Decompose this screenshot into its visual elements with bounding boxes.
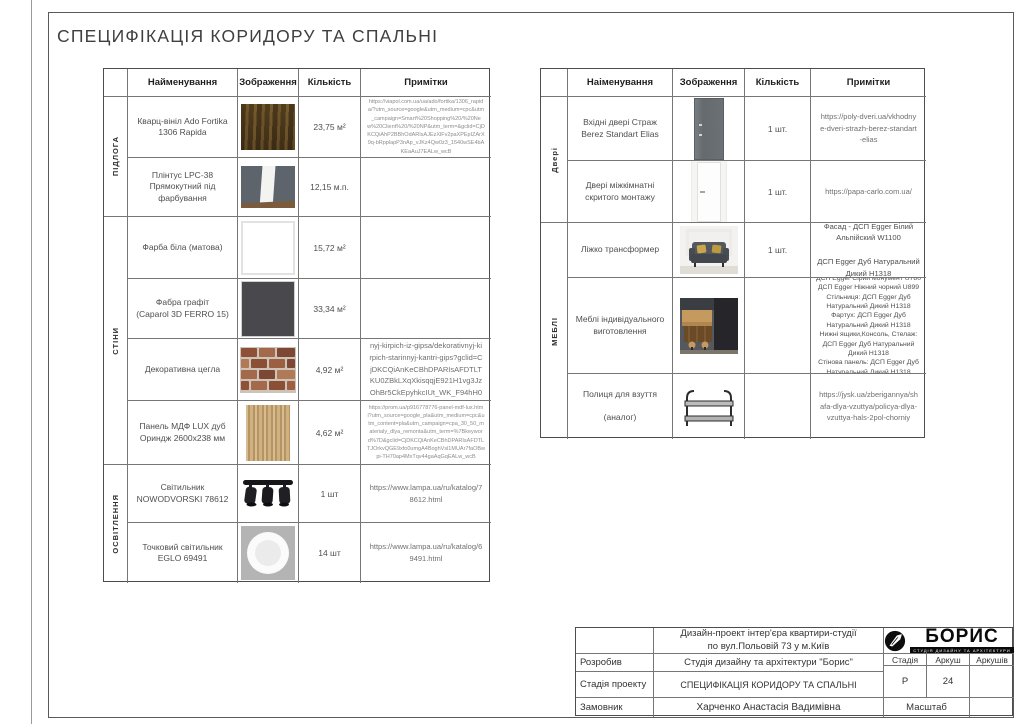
cell-qty — [745, 278, 811, 374]
cell-image — [238, 523, 299, 583]
custom-kitchen-image — [680, 298, 738, 354]
category-floor: ПІДЛОГА — [104, 97, 128, 217]
col-header-qty: Кількість — [745, 69, 811, 97]
cell-name: Меблі індивідуального виготовлення — [568, 278, 673, 374]
cell-image — [238, 158, 299, 217]
label-scale: Масштаб — [884, 698, 970, 717]
category-label: Двері — [550, 147, 559, 173]
interior-door-image — [691, 161, 727, 223]
cell-image — [673, 223, 745, 278]
cell-image — [238, 465, 299, 523]
cell-image — [238, 401, 299, 465]
col-header-category-blank — [104, 69, 128, 97]
cell-notes: ДСП Egger Сірий монумент U780 ДСП Egger … — [811, 278, 926, 374]
cell-name: Кварц-вініл Ado Fortika 1306 Rapida — [128, 97, 238, 158]
value-scale — [970, 698, 1014, 717]
cell-image — [673, 161, 745, 223]
col-header-category-blank — [541, 69, 568, 97]
cell-notes — [361, 217, 491, 279]
page-title: СПЕЦИФІКАЦІЯ КОРИДОРУ ТА СПАЛЬНІ — [57, 26, 438, 47]
value-sheet-number: 24 — [927, 666, 970, 698]
title-block: Дизайн-проект інтер'єра квартири-студії … — [575, 627, 1013, 716]
col-header-notes: Примітки — [811, 69, 926, 97]
white-paint-image — [241, 221, 295, 275]
cell-image — [673, 374, 745, 439]
cell-qty: 15,72 м² — [299, 217, 361, 279]
cell-qty: 1 шт — [299, 465, 361, 523]
spec-table-floor-walls-lighting: Найменування Зображення Кількість Приміт… — [103, 68, 490, 582]
cell-notes: https://papa-carlo.com.ua/ — [811, 161, 926, 223]
cell-image — [238, 339, 299, 401]
category-label: ОСВІТЛЕННЯ — [111, 494, 120, 554]
cell-notes: https://jysk.ua/zberigannya/shafa-dlya-v… — [811, 374, 926, 439]
cell-qty: 33,34 м² — [299, 279, 361, 339]
col-header-image: Зображення — [673, 69, 745, 97]
category-furniture: МЕБЛІ — [541, 223, 568, 439]
cell-notes: Фасад - ДСП Egger Білий Альпійский W1100… — [811, 223, 926, 278]
cell-name: Світильник NOWODVORSKI 78612 — [128, 465, 238, 523]
value-developer: Студія дизайну та архітектури "Борис" — [654, 654, 884, 672]
value-sheet-title: СПЕЦИФІКАЦІЯ КОРИДОРУ ТА СПАЛЬНІ — [654, 672, 884, 698]
cell-qty: 1 шт. — [745, 161, 811, 223]
decorative-brick-image — [240, 347, 296, 393]
cell-name: Вхідні двері Страж Berez Standart Elias — [568, 97, 673, 161]
logo-tagline: СТУДІЯ ДИЗАЙНУ ТА АРХІТЕКТУРИ — [910, 647, 1013, 654]
logo-cell: БОРИС СТУДІЯ ДИЗАЙНУ ТА АРХІТЕКТУРИ — [884, 628, 1014, 654]
cell-notes: https://www.lampa.ua/ru/katalog/78612.ht… — [361, 465, 491, 523]
cell-notes: https://www.lampa.ua/ru/katalog/69491.ht… — [361, 523, 491, 583]
category-label: МЕБЛІ — [550, 317, 559, 346]
cell-name: Точковий світильник EGLO 69491 — [128, 523, 238, 583]
cell-name: Плінтус LPC-38 Прямокутний під фарбуванн… — [128, 158, 238, 217]
category-label: СТІНИ — [111, 327, 120, 355]
cell-qty: 4,92 м² — [299, 339, 361, 401]
category-doors: Двері — [541, 97, 568, 223]
label-developer: Розробив — [576, 654, 654, 672]
cell-notes: https://poly-dveri.ua/vkhodnye-dveri-str… — [811, 97, 926, 161]
sofa-bed-image — [680, 226, 738, 274]
col-header-notes: Примітки — [361, 69, 491, 97]
value-client: Харченко Анастасія Вадимівна — [654, 698, 884, 717]
spot-lamp-image — [238, 473, 298, 515]
cell-qty — [745, 374, 811, 439]
title-block-blank-cell — [576, 628, 654, 654]
cell-qty: 1 шт. — [745, 223, 811, 278]
cell-name: Ліжко трансформер — [568, 223, 673, 278]
category-lighting: ОСВІТЛЕННЯ — [104, 465, 128, 583]
category-walls: СТІНИ — [104, 217, 128, 465]
cell-notes: https://viapol.com.ua/ua/ado/fortika/130… — [361, 97, 491, 158]
header-sheet: Аркуш — [927, 654, 970, 666]
label-project-stage: Стадія проекту — [576, 672, 654, 698]
boris-logo: БОРИС СТУДІЯ ДИЗАЙНУ ТА АРХІТЕКТУРИ — [884, 628, 1013, 654]
cell-notes: https://loft-stone.com/ru/dekorativnyj-k… — [361, 339, 491, 401]
cell-notes — [361, 279, 491, 339]
category-label: ПІДЛОГА — [111, 136, 120, 176]
plinth-image — [241, 166, 295, 208]
col-header-image: Зображення — [238, 69, 299, 97]
cell-qty: 4,62 м² — [299, 401, 361, 465]
cell-notes — [361, 158, 491, 217]
spec-table-doors-furniture: Наіменування Зображення Кількість Приміт… — [540, 68, 925, 438]
pen-circle-icon — [884, 630, 906, 652]
interior-door-leaf — [697, 162, 721, 222]
cell-name: Панель МДФ LUX дуб Ориндж 2600х238 мм — [128, 401, 238, 465]
label-client: Замовник — [576, 698, 654, 717]
graphite-paint-image — [241, 281, 295, 337]
header-sheets: Аркушів — [970, 654, 1014, 666]
cell-name: Двері міжкімнатні скритого монтажу — [568, 161, 673, 223]
cell-name: Фарба біла (матова) — [128, 217, 238, 279]
cell-qty: 1 шт. — [745, 97, 811, 161]
cell-image — [673, 97, 745, 161]
recessed-light-image — [241, 526, 295, 580]
col-header-name: Наіменування — [568, 69, 673, 97]
cell-image — [238, 97, 299, 158]
project-description: Дизайн-проект інтер'єра квартири-студії … — [654, 628, 884, 654]
cell-image — [238, 279, 299, 339]
shoe-rack-image — [678, 385, 740, 429]
logo-name: БОРИС — [925, 628, 999, 646]
value-sheets-total — [970, 666, 1014, 698]
col-header-qty: Кількість — [299, 69, 361, 97]
cell-qty: 12,15 м.п. — [299, 158, 361, 217]
cell-qty: 14 шт — [299, 523, 361, 583]
cell-name: Декоративна цегла — [128, 339, 238, 401]
cell-name: Полиця для взуття (аналог) — [568, 374, 673, 439]
mdf-panel-image — [246, 405, 290, 461]
cell-image — [238, 217, 299, 279]
cell-image — [673, 278, 745, 374]
value-stage: Р — [884, 666, 927, 698]
cell-name: Фабра графіт (Caparol 3D FERRO 15) — [128, 279, 238, 339]
sheet-binding-edge-line — [31, 0, 32, 724]
entrance-door-image — [694, 98, 724, 160]
header-stage: Стадія — [884, 654, 927, 666]
cell-notes: https://prom.ua/p916778776-panel-mdf-lux… — [361, 401, 491, 465]
quartz-vinyl-image — [241, 104, 295, 150]
col-header-name: Найменування — [128, 69, 238, 97]
cell-qty: 23,75 м² — [299, 97, 361, 158]
